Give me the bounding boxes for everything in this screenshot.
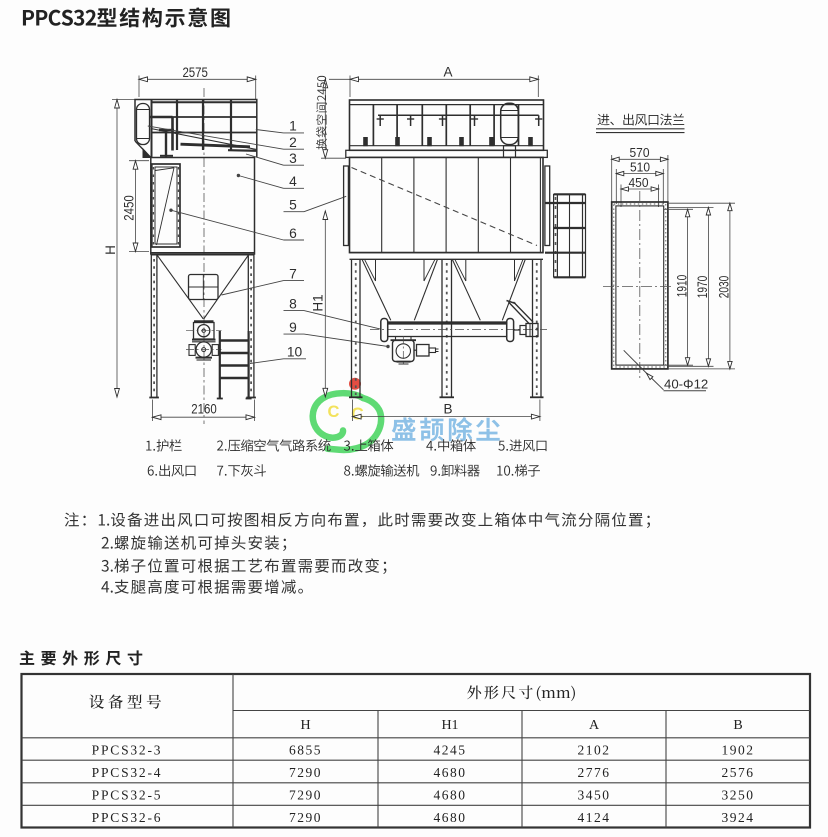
svg-text:B: B [733,718,742,733]
svg-text:A: A [443,65,452,80]
svg-text:2576: 2576 [722,765,755,780]
svg-text:10: 10 [287,345,303,360]
svg-text:2: 2 [289,135,297,150]
svg-text:2450: 2450 [121,195,137,221]
svg-text:7290: 7290 [289,765,322,780]
svg-text:H: H [103,245,118,255]
svg-text:6855: 6855 [289,742,322,757]
svg-text:7: 7 [289,266,297,281]
svg-text:PPCS32-5: PPCS32-5 [92,788,163,803]
svg-text:3450: 3450 [578,788,611,803]
svg-text:510: 510 [630,159,650,174]
svg-text:PPCS32-6: PPCS32-6 [92,810,163,825]
svg-text:4245: 4245 [434,742,467,757]
svg-text:4680: 4680 [434,788,467,803]
svg-text:H1: H1 [311,294,326,311]
svg-text:2160: 2160 [191,401,217,417]
svg-text:2102: 2102 [578,742,611,757]
svg-text:8: 8 [289,296,297,311]
svg-text:H1: H1 [441,718,458,733]
svg-text:3924: 3924 [722,810,755,825]
svg-text:450: 450 [629,175,649,190]
svg-text:3: 3 [289,151,297,166]
svg-text:7290: 7290 [289,788,322,803]
svg-text:C: C [328,403,340,421]
svg-text:2575: 2575 [182,64,208,80]
svg-text:3250: 3250 [722,788,755,803]
svg-text:4680: 4680 [434,765,467,780]
svg-text:2030: 2030 [716,276,732,299]
svg-text:6: 6 [289,226,297,241]
svg-text:C: C [351,404,364,424]
svg-text:7290: 7290 [289,810,322,825]
svg-text:PPCS32-3: PPCS32-3 [92,742,163,757]
svg-text:H: H [300,718,310,733]
svg-text:5: 5 [289,198,297,213]
svg-text:1910: 1910 [673,275,689,298]
svg-text:PPCS32-4: PPCS32-4 [92,765,163,780]
svg-text:1: 1 [289,119,297,134]
svg-text:4680: 4680 [434,810,467,825]
svg-text:570: 570 [630,145,650,160]
svg-text:B: B [443,402,452,417]
svg-text:A: A [589,718,600,733]
svg-text:1970: 1970 [694,276,710,299]
svg-text:4124: 4124 [578,810,611,825]
svg-text:40-Φ12: 40-Φ12 [664,377,708,392]
svg-text:1902: 1902 [722,742,755,757]
svg-text:4: 4 [289,174,297,189]
svg-text:9: 9 [289,320,297,335]
svg-text:2776: 2776 [578,765,611,780]
